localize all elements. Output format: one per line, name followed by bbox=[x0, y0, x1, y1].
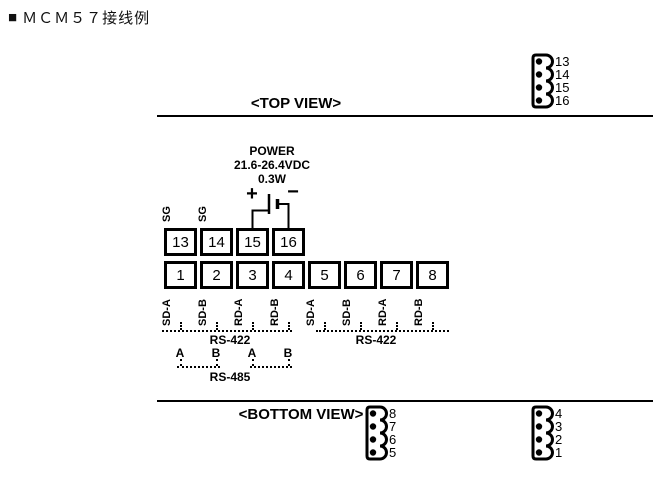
rs422-left-bus-line bbox=[162, 330, 292, 332]
connector-outline bbox=[533, 407, 553, 459]
rs485-bridge-line bbox=[177, 366, 220, 368]
terminal-4-label: RD-B bbox=[269, 299, 282, 327]
terminal-1-label: SD-A bbox=[161, 299, 174, 326]
bottom-view-label: <BOTTOM VIEW> bbox=[239, 406, 364, 423]
terminal-box-2: 2 bbox=[200, 261, 233, 289]
pin-number: 16 bbox=[555, 93, 569, 108]
terminal-box-3: 3 bbox=[236, 261, 269, 289]
rs485-b2-label: B bbox=[284, 346, 293, 360]
connector-bottom-left-icon: 8 7 6 5 bbox=[364, 404, 408, 462]
power-spec: POWER 21.6-26.4VDC 0.3W bbox=[234, 144, 310, 186]
connector-outline bbox=[367, 407, 387, 459]
dotted-stub bbox=[216, 322, 218, 330]
terminal-6-label: SD-B bbox=[341, 299, 354, 326]
rs485-a1-label: A bbox=[176, 346, 185, 360]
pin-dot bbox=[536, 423, 542, 429]
terminal-box-1: 1 bbox=[164, 261, 197, 289]
terminal-box-6: 6 bbox=[344, 261, 377, 289]
terminal-7-label: RD-A bbox=[377, 299, 390, 327]
rs422-right-label: RS-422 bbox=[356, 333, 397, 347]
pin-dot bbox=[536, 97, 542, 103]
terminal-2-label: SD-B bbox=[197, 299, 210, 326]
battery-symbol bbox=[240, 188, 300, 230]
terminal-5-label: SD-A bbox=[305, 299, 318, 326]
connector-bottom-right-icon: 4 3 2 1 bbox=[530, 404, 574, 462]
terminal-box-4: 4 bbox=[272, 261, 305, 289]
terminal-box-13: 13 bbox=[164, 228, 197, 256]
top-view-label: <TOP VIEW> bbox=[251, 95, 341, 112]
title-square-icon: ■ bbox=[8, 9, 18, 26]
rs485-a2-label: A bbox=[248, 346, 257, 360]
pin-dot bbox=[536, 71, 542, 77]
terminal-box-15: 15 bbox=[236, 228, 269, 256]
page-title: ■ ＭＣＭ５７接线例 bbox=[8, 7, 150, 28]
rs485-label: RS-485 bbox=[210, 370, 251, 384]
wiring-diagram-page: ■ ＭＣＭ５７接线例 <TOP VIEW> 13 14 15 16 POWER … bbox=[0, 0, 657, 480]
dotted-stub bbox=[324, 322, 326, 330]
title-text: ＭＣＭ５７接线例 bbox=[22, 7, 150, 28]
terminal-box-16: 16 bbox=[272, 228, 305, 256]
terminal-8-label: RD-B bbox=[413, 299, 426, 327]
dotted-stub bbox=[288, 322, 290, 330]
rs485-b1-label: B bbox=[212, 346, 221, 360]
rs422-left-label: RS-422 bbox=[210, 333, 251, 347]
pin-dot bbox=[370, 423, 376, 429]
rs485-bridge-line bbox=[250, 366, 292, 368]
power-title: POWER bbox=[234, 144, 310, 158]
top-rule bbox=[157, 115, 653, 117]
pin-dot bbox=[536, 58, 542, 64]
dotted-stub bbox=[360, 322, 362, 330]
pin-dot bbox=[536, 84, 542, 90]
terminal-13-label: SG bbox=[161, 206, 174, 222]
pin-dot bbox=[370, 436, 376, 442]
terminal-box-5: 5 bbox=[308, 261, 341, 289]
pin-dot bbox=[536, 436, 542, 442]
dotted-stub bbox=[180, 359, 182, 366]
power-voltage: 21.6-26.4VDC bbox=[234, 158, 310, 172]
dotted-stub bbox=[396, 322, 398, 330]
dotted-stub bbox=[216, 359, 218, 366]
dotted-stub bbox=[252, 322, 254, 330]
connector-outline bbox=[533, 55, 553, 107]
terminal-14-label: SG bbox=[197, 206, 210, 222]
terminal-box-8: 8 bbox=[416, 261, 449, 289]
pin-dot bbox=[536, 410, 542, 416]
dotted-stub bbox=[180, 322, 182, 330]
dotted-stub bbox=[288, 359, 290, 366]
terminal-box-14: 14 bbox=[200, 228, 233, 256]
bottom-rule bbox=[157, 400, 653, 402]
terminal-box-7: 7 bbox=[380, 261, 413, 289]
connector-top-right-icon: 13 14 15 16 bbox=[530, 52, 574, 110]
pin-dot bbox=[536, 449, 542, 455]
pin-number: 5 bbox=[389, 445, 396, 460]
dotted-stub bbox=[432, 322, 434, 330]
dotted-stub bbox=[252, 359, 254, 366]
rs422-right-bus-line bbox=[316, 330, 449, 332]
pin-dot bbox=[370, 410, 376, 416]
terminal-3-label: RD-A bbox=[233, 299, 246, 327]
pin-number: 1 bbox=[555, 445, 562, 460]
pin-dot bbox=[370, 449, 376, 455]
